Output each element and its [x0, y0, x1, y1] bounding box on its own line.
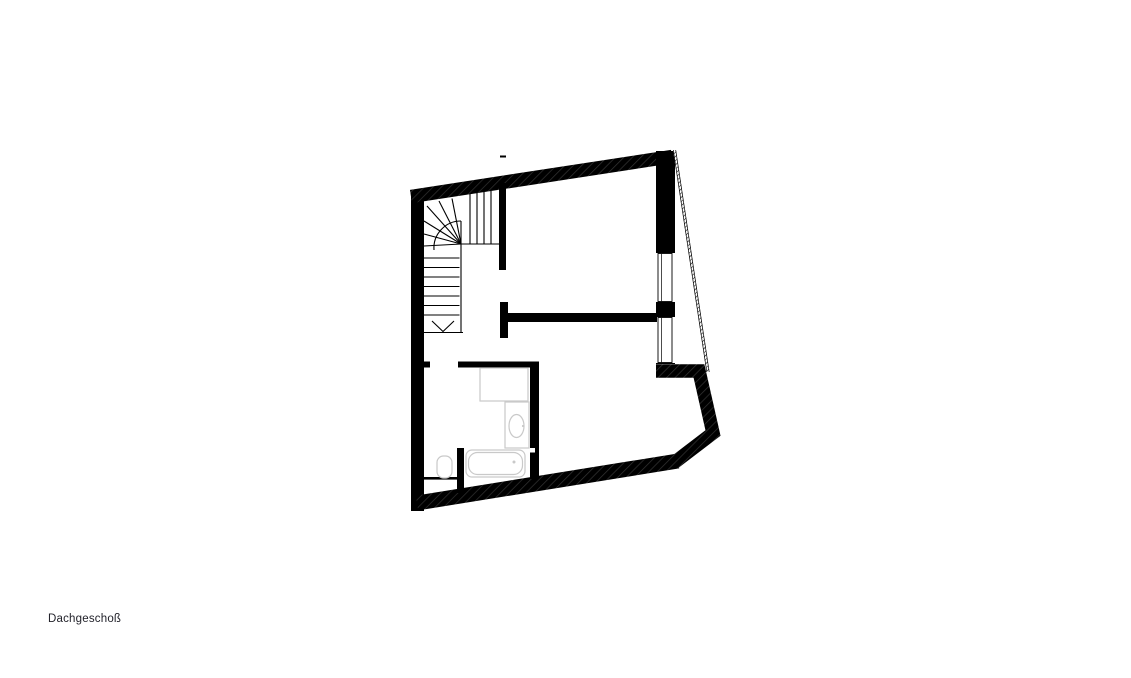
wall-left-door-jamb — [424, 362, 430, 368]
wall-left — [411, 190, 424, 511]
stair-treads-winder — [424, 199, 461, 247]
stair-treads-top-run — [470, 191, 491, 244]
window-upper-right — [656, 253, 675, 302]
wall-bath-left-lower — [457, 448, 464, 493]
wall-bottom — [417, 461, 678, 503]
shower-tray — [480, 368, 528, 401]
window-lower-right — [656, 317, 675, 363]
roof-edge-line — [673, 150, 709, 372]
bathroom-fixtures — [437, 368, 529, 478]
bathtub — [466, 450, 525, 477]
floor-plan-drawing — [0, 0, 1131, 678]
stair-treads-straight — [424, 258, 460, 315]
staircase — [424, 191, 499, 333]
wall-room-divider — [503, 313, 657, 322]
wall-bath-right — [530, 362, 539, 480]
stair-direction-arrow — [432, 321, 454, 332]
wall-top — [411, 157, 672, 197]
wall-right-lower — [656, 371, 713, 462]
floor-label: Dachgeschoß — [48, 611, 121, 627]
wall-bath-top — [458, 362, 538, 368]
tick-mark-top — [500, 156, 506, 158]
washbasin — [505, 402, 529, 448]
wall-bath-right-notch — [530, 448, 535, 453]
page: Dachgeschoß — [0, 0, 1131, 678]
interior-walls — [424, 183, 657, 493]
toilet — [437, 456, 452, 478]
wall-stairwell-right — [499, 183, 506, 270]
